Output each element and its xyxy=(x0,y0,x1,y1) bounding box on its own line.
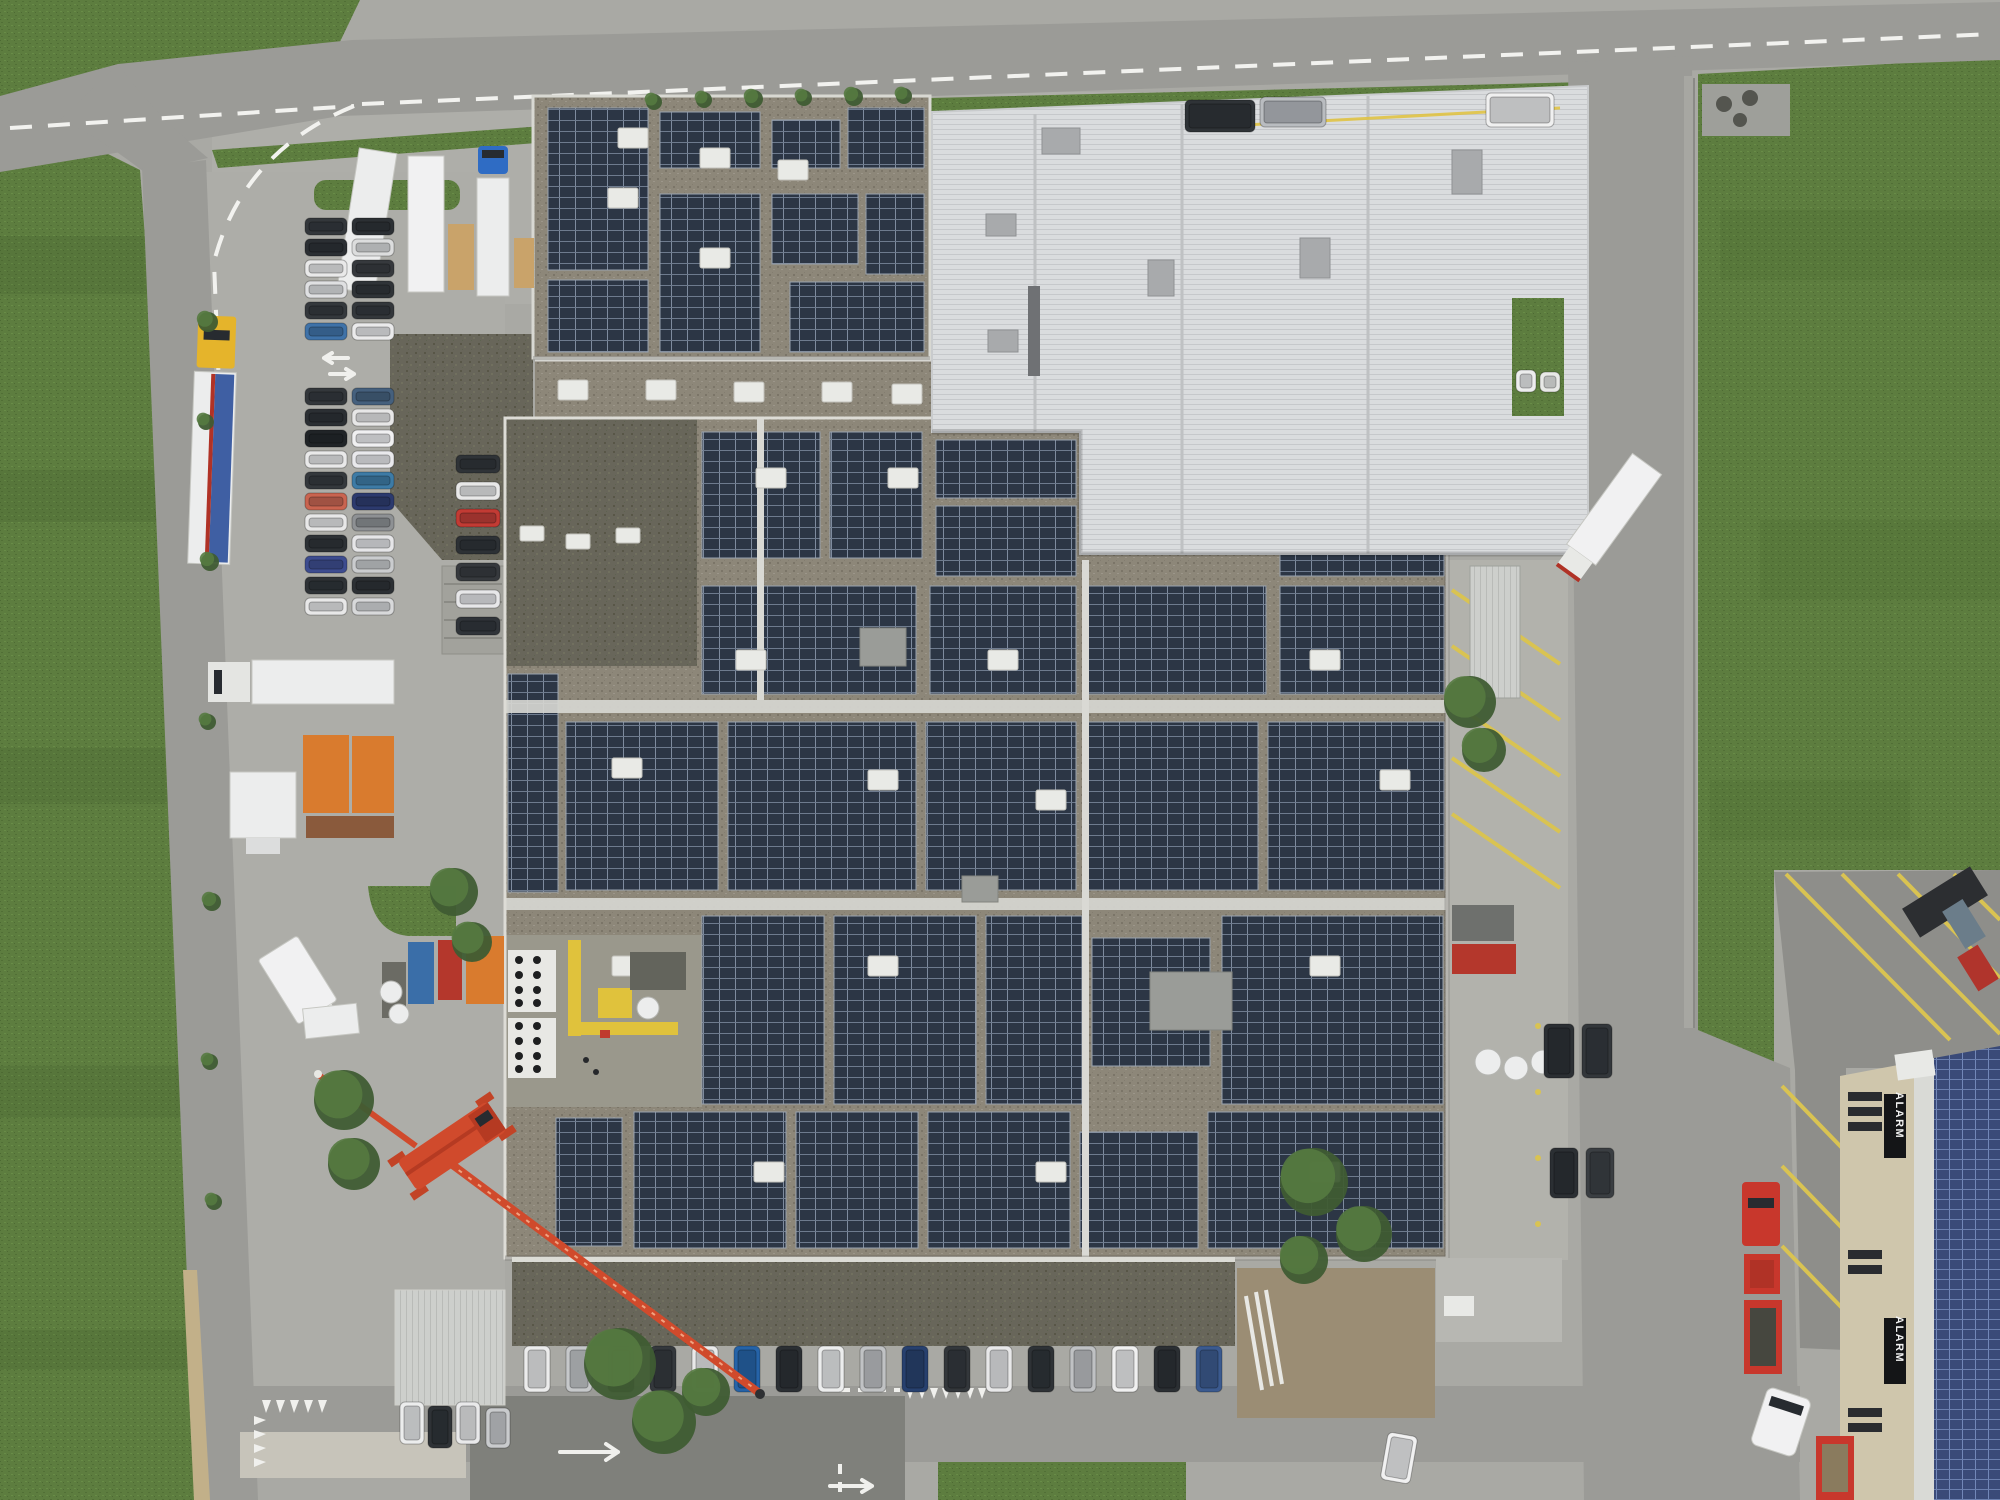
grass-notch xyxy=(1512,298,1564,416)
hvac-fan xyxy=(515,1065,523,1073)
solar-panel-block xyxy=(986,916,1082,1104)
parked-car-glass xyxy=(356,285,390,294)
skylight xyxy=(1310,650,1340,670)
tree xyxy=(1336,1206,1381,1251)
tree xyxy=(695,91,708,104)
parked-car-glass xyxy=(356,413,390,422)
skylight xyxy=(608,188,638,208)
skylight xyxy=(700,148,730,168)
parked-car-glass xyxy=(309,264,343,273)
container-box xyxy=(568,940,581,1036)
parked-car-glass xyxy=(1032,1350,1050,1388)
parked-car-glass xyxy=(356,434,390,443)
hvac-fan xyxy=(533,986,541,994)
solar-panel-block xyxy=(772,194,858,264)
skylight xyxy=(868,770,898,790)
parked-car-glass xyxy=(309,434,343,443)
solar-panel-block xyxy=(790,282,924,352)
aerial-photo: Aerial drone view of an industrial facil… xyxy=(0,0,2000,1500)
skylight xyxy=(756,468,786,488)
hvac-fan xyxy=(533,999,541,1007)
parked-car-glass xyxy=(356,327,390,336)
parked-car-glass xyxy=(309,392,343,401)
container-box xyxy=(352,736,394,813)
hvac-fan xyxy=(533,1037,541,1045)
skylight xyxy=(616,528,640,543)
parked-car-glass xyxy=(1520,374,1532,388)
tree xyxy=(844,87,858,101)
parked-car-glass xyxy=(356,539,390,548)
tree xyxy=(744,89,758,103)
solar-panel-block xyxy=(660,194,760,352)
parked-car-glass xyxy=(309,413,343,422)
container-box xyxy=(568,1022,678,1035)
white-semi-trailer xyxy=(252,660,394,704)
skylight xyxy=(988,650,1018,670)
parked-car-glass xyxy=(309,285,343,294)
skylight xyxy=(892,384,922,404)
grass-mowing-shade xyxy=(0,1330,208,1370)
tree xyxy=(633,1391,684,1442)
hvac-fan xyxy=(533,1065,541,1073)
parked-car-glass xyxy=(309,243,343,252)
roof-walkway-1 xyxy=(505,700,1447,713)
container-box xyxy=(600,1030,610,1038)
hvac-fan xyxy=(515,1022,523,1030)
parked-car-glass xyxy=(1116,1350,1134,1388)
parked-car-glass xyxy=(432,1410,448,1444)
roof-dark-seam xyxy=(1028,286,1040,376)
se-blue-solar-roof xyxy=(1934,1046,2000,1500)
facade-window xyxy=(1848,1423,1882,1432)
tree xyxy=(328,1138,370,1180)
facade-window xyxy=(1848,1408,1882,1417)
hvac-fan xyxy=(515,986,523,994)
red-trailer-bed xyxy=(1750,1308,1776,1366)
parked-car-glass xyxy=(490,1412,506,1444)
tree xyxy=(585,1329,643,1387)
crane-hook xyxy=(755,1389,765,1399)
trailer-parked-2 xyxy=(408,156,444,292)
hvac-fan xyxy=(515,971,523,979)
container-box xyxy=(514,238,534,288)
tree xyxy=(197,311,213,327)
box-truck-body xyxy=(230,772,296,838)
parked-car-glass xyxy=(356,518,390,527)
storage-tank xyxy=(1504,1056,1528,1080)
parked-car-glass xyxy=(356,392,390,401)
hvac-unit xyxy=(1150,972,1232,1030)
hvac-fan xyxy=(515,1052,523,1060)
red-flatbed-deck xyxy=(1750,1260,1774,1288)
parked-car-glass xyxy=(780,1350,798,1388)
blue-cab-trailer xyxy=(477,178,509,296)
red-truck-cab xyxy=(1742,1182,1780,1246)
hvac-unit xyxy=(962,876,998,902)
grass-shade-right xyxy=(1720,210,2000,280)
marker-post xyxy=(1535,1221,1541,1227)
storage-tank xyxy=(1475,1049,1501,1075)
utility-circle xyxy=(1716,96,1732,112)
solar-panel-block xyxy=(866,194,924,274)
skylight xyxy=(618,128,648,148)
parked-car-glass xyxy=(309,327,343,336)
solar-panel-block xyxy=(1080,1132,1198,1248)
solar-panel-block xyxy=(1086,586,1266,694)
solar-panel-block xyxy=(548,108,924,352)
container-box xyxy=(630,952,686,990)
parked-car-glass xyxy=(1554,1152,1574,1194)
solar-panel-block xyxy=(796,1112,918,1248)
parked-car-glass xyxy=(356,497,390,506)
blue-cab-truck xyxy=(477,146,509,296)
tree xyxy=(205,1193,218,1206)
skylight xyxy=(1380,770,1410,790)
tree xyxy=(795,89,808,102)
tree xyxy=(682,1368,720,1406)
alarm-sign-2-text: ALARM xyxy=(1893,1316,1905,1363)
container-box xyxy=(1452,905,1514,941)
container-box xyxy=(303,735,349,813)
tree xyxy=(1281,1149,1335,1203)
container-box xyxy=(1444,1296,1474,1316)
skylight xyxy=(778,160,808,180)
solar-panel-block xyxy=(848,108,924,168)
parked-car-glass xyxy=(528,1350,546,1388)
skylight xyxy=(736,650,766,670)
parked-car-glass xyxy=(1548,1028,1570,1074)
parked-car-glass xyxy=(356,560,390,569)
grass-mowing-shade xyxy=(0,1066,204,1118)
facade-window xyxy=(1848,1092,1882,1101)
container-box xyxy=(306,816,394,838)
parked-car-glass xyxy=(356,455,390,464)
parked-car-glass xyxy=(822,1350,840,1388)
tree xyxy=(895,87,908,100)
parked-car-glass xyxy=(356,581,390,590)
crane-jib-tip xyxy=(314,1070,322,1078)
skylight xyxy=(822,382,852,402)
parked-car-glass xyxy=(460,594,496,604)
parked-car-glass xyxy=(1200,1350,1218,1388)
solar-panel-block xyxy=(548,280,648,352)
solar-panel-block xyxy=(830,432,922,558)
skylight xyxy=(646,380,676,400)
roof-vent xyxy=(1148,260,1174,296)
parked-car-glass xyxy=(309,497,343,506)
container-box xyxy=(1452,944,1516,974)
parked-car-glass xyxy=(948,1350,966,1388)
tree xyxy=(202,892,216,906)
parked-car-glass xyxy=(1590,1152,1610,1194)
parked-car-glass xyxy=(460,567,496,577)
person-dot xyxy=(583,1057,589,1063)
marker-post xyxy=(1535,1155,1541,1161)
white-semi-windshield xyxy=(214,670,222,694)
parked-car-glass xyxy=(356,222,390,231)
tree xyxy=(1444,676,1486,718)
parked-car-glass xyxy=(1158,1350,1176,1388)
skylight xyxy=(868,956,898,976)
parked-car-glass xyxy=(864,1350,882,1388)
parked-car-glass xyxy=(1586,1028,1608,1074)
roof-vent xyxy=(986,214,1016,236)
parked-car-glass xyxy=(1490,97,1550,123)
parked-car-glass xyxy=(356,602,390,611)
container-box xyxy=(598,988,632,1018)
parked-car-glass xyxy=(309,518,343,527)
solar-panel-block xyxy=(1268,722,1444,890)
se-rooftop-unit xyxy=(1894,1049,1935,1080)
parked-car-glass xyxy=(309,560,343,569)
solar-panel-block xyxy=(556,1118,622,1246)
blue-cab-windshield xyxy=(482,150,504,158)
solar-panel-block xyxy=(936,506,1076,576)
container-box xyxy=(408,942,434,1004)
skylight xyxy=(612,758,642,778)
alarm-sign-1-text: ALARM xyxy=(1893,1092,1905,1139)
grass-shade-right xyxy=(1760,520,2000,600)
footpath xyxy=(1684,76,1693,1028)
facade-window xyxy=(1848,1107,1882,1116)
storage-tank xyxy=(380,981,402,1003)
solar-panel-block xyxy=(930,586,1076,694)
red-truck-windshield xyxy=(1748,1198,1774,1208)
tree xyxy=(452,922,484,954)
red-trailer-2-bed xyxy=(1822,1444,1848,1492)
parked-car-glass xyxy=(356,306,390,315)
skylight xyxy=(1310,956,1340,976)
parked-car-glass xyxy=(460,1406,476,1440)
grass-entrance-island xyxy=(938,1456,1186,1500)
skylight xyxy=(734,382,764,402)
parked-car-glass xyxy=(990,1350,1008,1388)
tree xyxy=(201,1053,214,1066)
parked-car-glass xyxy=(309,476,343,485)
skylight xyxy=(888,468,918,488)
hvac-fan xyxy=(533,1052,541,1060)
hvac-unit xyxy=(860,628,906,666)
parked-car-glass xyxy=(309,455,343,464)
solar-panel-block xyxy=(728,722,916,890)
solar-panel-block xyxy=(834,916,976,1104)
tree xyxy=(314,1070,362,1118)
parked-car-glass xyxy=(460,540,496,550)
utility-circle xyxy=(1742,90,1758,106)
parked-car-glass xyxy=(356,476,390,485)
parked-car-glass xyxy=(1544,376,1556,388)
hvac-fan xyxy=(515,999,523,1007)
solar-panel-block xyxy=(1280,586,1444,694)
skylight xyxy=(754,1162,784,1182)
skylight xyxy=(566,534,590,549)
tree xyxy=(199,713,212,726)
tree xyxy=(200,552,214,566)
parked-car-glass xyxy=(460,621,496,631)
facade-window xyxy=(1848,1250,1882,1259)
small-parking-canopy xyxy=(395,1290,505,1405)
container-box xyxy=(448,224,474,290)
parked-car-glass xyxy=(460,513,496,523)
parked-car-glass xyxy=(356,264,390,273)
tree xyxy=(197,413,210,426)
parked-car-glass xyxy=(906,1350,924,1388)
storage-tank xyxy=(389,1004,409,1024)
solar-panel-block xyxy=(1086,722,1258,890)
tree xyxy=(645,93,658,106)
facade-window xyxy=(1848,1265,1882,1274)
roof-vent xyxy=(1042,128,1080,154)
roof-vent xyxy=(1300,238,1330,278)
parked-car-glass xyxy=(356,243,390,252)
tree xyxy=(1462,728,1497,763)
se-roof-strip xyxy=(1914,1058,1934,1500)
parked-car-glass xyxy=(1074,1350,1092,1388)
storage-tank xyxy=(637,997,659,1019)
southeast-building: ALARM ALARM xyxy=(1840,1046,2000,1500)
solar-panel-block xyxy=(936,440,1076,498)
roof-vent xyxy=(988,330,1018,352)
person-dot xyxy=(593,1069,599,1075)
skylight xyxy=(1036,790,1066,810)
hvac-fan xyxy=(515,1037,523,1045)
parked-car-glass xyxy=(1264,101,1322,123)
hvac-fan xyxy=(533,956,541,964)
marker-post xyxy=(1535,1089,1541,1095)
skylight xyxy=(558,380,588,400)
solar-panel-block xyxy=(1222,916,1443,1104)
parked-car-glass xyxy=(309,602,343,611)
tree xyxy=(1280,1236,1318,1274)
parked-car-glass xyxy=(309,306,343,315)
parked-car-glass xyxy=(654,1350,672,1388)
roof-vent xyxy=(1452,150,1482,194)
parked-car-glass xyxy=(404,1406,420,1440)
tree xyxy=(430,868,468,906)
utility-circle xyxy=(1733,113,1747,127)
white-semi-west xyxy=(208,660,394,704)
hvac-fan xyxy=(515,956,523,964)
roof-conduit-2 xyxy=(1082,560,1089,1258)
annex-hall xyxy=(533,96,930,358)
south-canopy-parapet xyxy=(512,1257,1235,1262)
aerial-scene: Aerial drone view of an industrial facil… xyxy=(0,0,2000,1500)
parked-car-glass xyxy=(1189,104,1251,128)
parked-car-glass xyxy=(309,222,343,231)
skylight xyxy=(520,526,544,541)
facade-window xyxy=(1848,1122,1882,1131)
marker-post xyxy=(1535,1023,1541,1029)
swap-body-box xyxy=(303,1003,360,1038)
parked-car-glass xyxy=(460,459,496,469)
parked-car-glass xyxy=(460,486,496,496)
parked-car-glass xyxy=(309,581,343,590)
hvac-fan xyxy=(533,1022,541,1030)
skylight xyxy=(700,248,730,268)
hvac-fan xyxy=(533,971,541,979)
skylight xyxy=(1036,1162,1066,1182)
box-truck-cab xyxy=(246,838,280,854)
parked-car-glass xyxy=(309,539,343,548)
solar-panel-block xyxy=(702,916,824,1104)
grass-shade-right xyxy=(1710,780,1910,840)
solar-panel-block xyxy=(566,722,718,890)
